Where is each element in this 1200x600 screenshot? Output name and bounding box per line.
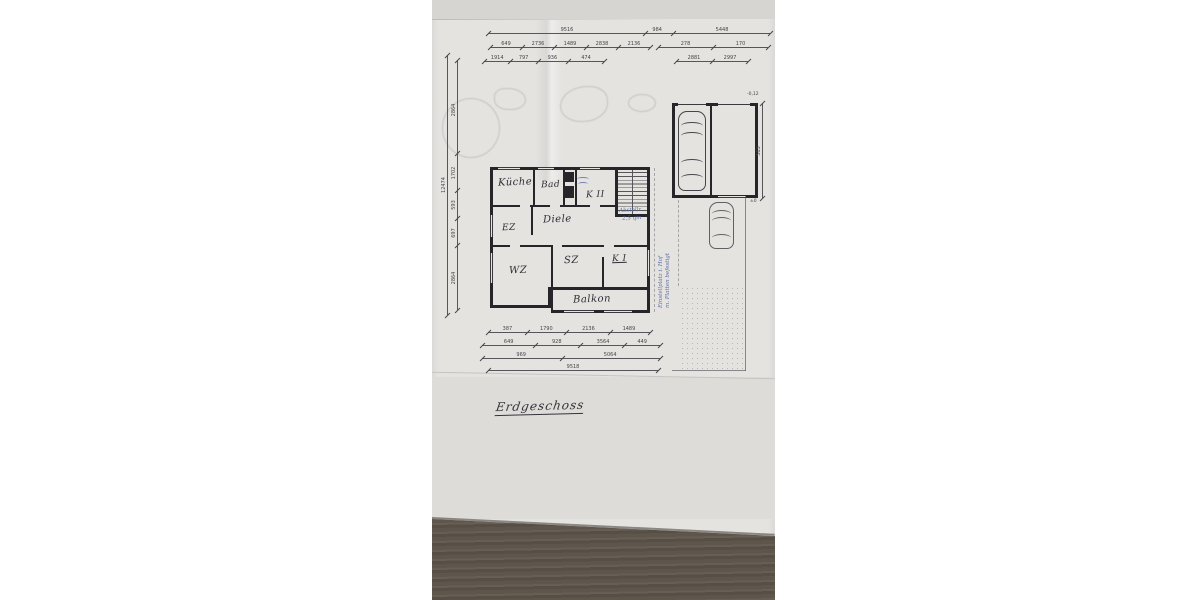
yard-boundary-bottom xyxy=(672,370,746,371)
yard-paving-dots xyxy=(680,286,744,370)
wall-mid4 xyxy=(600,205,617,207)
dimension-value: 5064 xyxy=(604,352,617,358)
chimney-block xyxy=(565,172,574,182)
blue-scribble xyxy=(578,182,588,186)
room-label-kind2: K II xyxy=(586,190,605,201)
dimension-line xyxy=(482,358,660,359)
dimension-line xyxy=(490,47,650,48)
dimension-value: 2864 xyxy=(451,271,457,284)
dimension-value: 5448 xyxy=(716,27,729,33)
dimension-value: 697 xyxy=(451,228,457,238)
dimension-tick xyxy=(746,58,752,64)
dimension-value: 2838 xyxy=(596,41,609,47)
wall-mid2 xyxy=(530,205,550,207)
wall-right xyxy=(647,167,650,313)
dimension-value: 593 xyxy=(451,200,457,210)
room-label-kueche: Küche xyxy=(498,176,533,188)
dimension-value: 1914 xyxy=(491,55,504,61)
room-label-kind1: K I xyxy=(612,254,627,265)
dimension-line xyxy=(488,370,658,371)
lower-paper-sheet xyxy=(432,377,775,519)
chimney-block xyxy=(565,186,574,198)
dimension-tick xyxy=(760,196,766,202)
level-mark: -0,12 xyxy=(747,92,759,97)
dimension-tick xyxy=(648,44,654,50)
dimension-line xyxy=(484,61,604,62)
room-label-diele: Diele xyxy=(543,214,572,226)
dimension-line xyxy=(762,103,763,198)
dimension-value: 2736 xyxy=(532,41,545,47)
balcony-rail-2 xyxy=(604,310,632,313)
dimension-value: 797 xyxy=(519,55,529,61)
dimension-line xyxy=(488,332,650,333)
dimension-tick xyxy=(766,44,772,50)
dimension-value: 2997 xyxy=(724,55,737,61)
dimension-tick xyxy=(658,342,664,348)
handwritten-note-stair-note-1: Abstellr. xyxy=(619,207,642,214)
garage-wall-left xyxy=(672,103,675,198)
dimension-value: 3564 xyxy=(597,339,610,345)
yard-boundary-right xyxy=(745,196,746,371)
wall-mid3 xyxy=(560,205,590,207)
window-bad xyxy=(538,167,554,170)
garage-divider-wall xyxy=(710,106,712,195)
balcony-wall-left xyxy=(551,290,553,312)
dimension-value: 9518 xyxy=(567,364,580,370)
dimension-value: 278 xyxy=(681,41,691,47)
garage-door-left xyxy=(678,103,706,106)
dimension-tick xyxy=(768,30,774,36)
dimension-line xyxy=(447,55,448,315)
dimension-line xyxy=(457,60,458,310)
garage-door-right xyxy=(718,103,750,106)
dimension-value: 969 xyxy=(516,352,526,358)
wall-low3 xyxy=(562,245,604,247)
blue-scribble xyxy=(577,177,589,181)
dimension-tick xyxy=(602,58,608,64)
room-label-bad: Bad xyxy=(541,180,561,191)
wall-bottom-wz xyxy=(490,305,551,308)
dimension-value: 2136 xyxy=(628,41,641,47)
dimension-value: 12474 xyxy=(441,177,447,193)
dimension-value: 649 xyxy=(504,339,514,345)
dimension-value: 984 xyxy=(652,27,662,33)
dimension-value: 936 xyxy=(548,55,558,61)
dimension-value: 649 xyxy=(501,41,511,47)
extension-line-dashed xyxy=(654,168,655,312)
dimension-value: 387 xyxy=(503,326,513,332)
paper-top-strip xyxy=(432,0,775,19)
dimension-value: 474 xyxy=(581,55,591,61)
wall-low2 xyxy=(520,245,552,247)
dimension-tick xyxy=(455,308,461,314)
dimension-line xyxy=(488,33,770,34)
dimension-value: 583 xyxy=(756,146,762,156)
room-label-sz: SZ xyxy=(564,255,579,267)
wall-left xyxy=(490,167,493,308)
room-label-ez: EZ xyxy=(502,223,516,233)
dimension-value: 1489 xyxy=(623,326,636,332)
dimension-value: 2881 xyxy=(688,55,701,61)
parked-car-top-view xyxy=(709,202,734,249)
handwritten-note-yard-note-1: Einstellplatz i. Hof xyxy=(658,256,664,308)
dimension-tick xyxy=(648,329,654,335)
wall-wz-sz xyxy=(551,245,553,290)
dimension-value: 1790 xyxy=(540,326,553,332)
pencil-ghost-scribble xyxy=(560,86,608,122)
wall-kueche-bad xyxy=(533,170,535,207)
floor-plan-photo: KücheBadK IIEZDieleWZSZK IBalkon 9516984… xyxy=(432,0,775,600)
dimension-tick xyxy=(445,313,451,319)
window-wz xyxy=(490,253,493,283)
dimension-value: 9516 xyxy=(561,27,574,33)
wall-mid1 xyxy=(490,205,520,207)
dimension-value: 2864 xyxy=(451,104,457,117)
room-label-balkon: Balkon xyxy=(573,293,611,305)
window-ez xyxy=(490,215,493,237)
wall-sz-k1 xyxy=(602,257,604,290)
dimension-value: 170 xyxy=(736,41,746,47)
dimension-value: 1702 xyxy=(451,166,457,179)
wall-ez-diele xyxy=(531,205,533,235)
dimension-value: 928 xyxy=(552,339,562,345)
window-kueche xyxy=(498,167,520,170)
car-top-view xyxy=(678,111,706,191)
wall-shaft-k2 xyxy=(575,170,577,207)
wall-low1 xyxy=(490,245,510,247)
wall-low4 xyxy=(614,245,647,247)
dimension-value: 2136 xyxy=(582,326,595,332)
dimension-tick xyxy=(658,355,664,361)
dimension-line xyxy=(482,345,660,346)
photo-background: KücheBadK IIEZDieleWZSZK IBalkon 9516984… xyxy=(0,0,1200,600)
pencil-ghost-scribble xyxy=(628,94,656,112)
handwritten-note-stair-note-2: 2,5 qm xyxy=(622,215,642,222)
dimension-value: 1489 xyxy=(564,41,577,47)
window-k2 xyxy=(580,167,600,170)
sheet-title-note: Erdgeschoss xyxy=(495,398,586,416)
window-k1 xyxy=(647,250,650,276)
yard-boundary-dashed xyxy=(678,200,679,286)
wall-bottom-main xyxy=(548,287,650,290)
room-label-wz: WZ xyxy=(509,265,528,277)
handwritten-note-yard-note-2: m. Platten befestigt xyxy=(665,253,671,308)
balcony-rail-1 xyxy=(564,310,594,313)
garage-rear-opening xyxy=(718,196,746,199)
dimension-tick xyxy=(656,367,662,373)
level-mark: ±0 xyxy=(750,199,757,204)
dimension-value: 449 xyxy=(637,339,647,345)
pencil-ghost-scribble xyxy=(494,88,526,110)
